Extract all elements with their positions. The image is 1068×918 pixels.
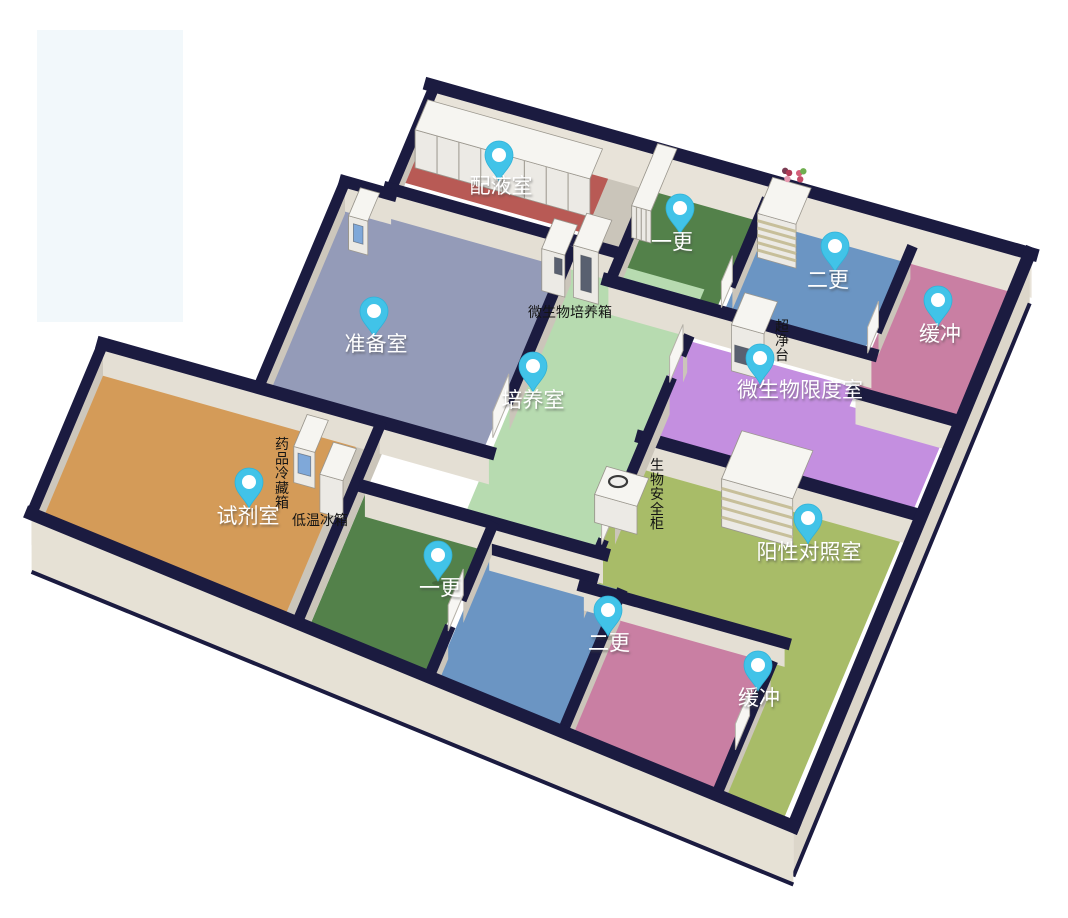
equipment-label-weishengwu-peiyangxiang: 微生物培养箱	[528, 305, 612, 321]
room-label-yigeng-bottom: 一更	[419, 577, 461, 600]
room-label-yigeng-top: 一更	[651, 231, 693, 254]
room-label-ergeng-top: 二更	[807, 269, 849, 292]
equipment-label-shengwu-anquangui: 生物安全柜	[650, 458, 664, 532]
pin-dot	[753, 351, 767, 365]
floor-plan-canvas: 微生物培养箱超净台药品冷藏箱低温冰箱生物安全柜 配液室一更二更缓冲准备室培养室微…	[0, 0, 1068, 918]
room-label-yangxing-duizhaoshi: 阳性对照室	[757, 541, 862, 564]
pin-dot	[673, 201, 687, 215]
room-label-ergeng-bottom: 二更	[588, 632, 630, 655]
pin-dot	[526, 359, 540, 373]
pin-dot	[367, 304, 381, 318]
room-label-zhunbeishi: 准备室	[345, 333, 408, 356]
pin-dot	[492, 148, 506, 162]
room-label-peiyangshi: 培养室	[502, 389, 565, 412]
equipment-label-yaopin-lengcangxiang: 药品冷藏箱	[275, 437, 289, 511]
lab-floorplan-stage: 微生物培养箱超净台药品冷藏箱低温冰箱生物安全柜 配液室一更二更缓冲准备室培养室微…	[0, 0, 1068, 918]
room-label-shijishi: 试剂室	[217, 505, 280, 528]
pin-dot	[601, 603, 615, 617]
room-label-peiyeshi: 配液室	[470, 175, 533, 198]
equipment-label-chaojingtai: 超净台	[775, 319, 789, 364]
equipment-label-diwen-bingxiang: 低温冰箱	[292, 513, 348, 529]
room-label-weishengwu-xiandushi: 微生物限度室	[737, 379, 863, 402]
room-label-huanchong-top: 缓冲	[919, 323, 961, 346]
pin-dot	[751, 658, 765, 672]
pin-dot	[242, 475, 256, 489]
room-label-huanchong-bottom: 缓冲	[738, 687, 780, 710]
pin-dot	[828, 239, 842, 253]
pin-dot	[801, 511, 815, 525]
watermark-block	[37, 30, 183, 322]
pin-dot	[431, 548, 445, 562]
pin-dot	[931, 293, 945, 307]
wall-top	[683, 340, 687, 350]
